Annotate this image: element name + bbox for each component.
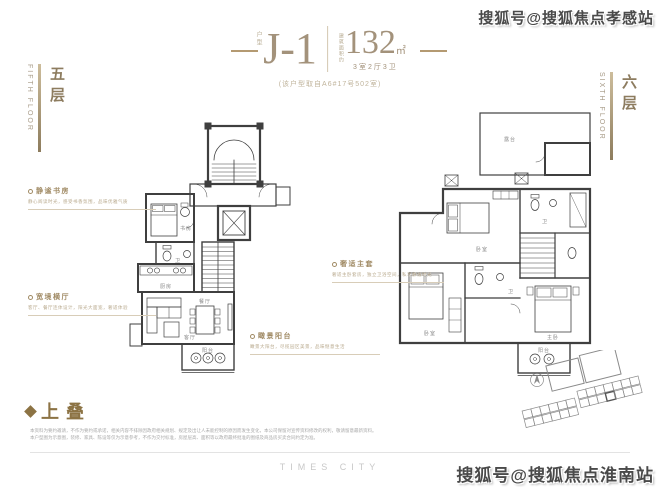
ac-unit-icon (445, 175, 458, 186)
annotation-leader-line (28, 209, 156, 210)
sixth-floor-cn: 六层 (618, 74, 639, 160)
area-row: 132 ㎡ (345, 27, 406, 59)
master-bedroom: 主卧 (511, 286, 579, 341)
fifth-floor-en: FIFTH FLOOR (26, 64, 33, 152)
fifth-floor-label: FIFTH FLOOR 五层 (26, 64, 67, 152)
sink-icon (497, 274, 504, 281)
annotation-leader-line (250, 354, 380, 355)
nightstand-icon (573, 287, 579, 295)
room-label: 餐厅 (199, 298, 211, 305)
watermark-bottom: 搜狐号@搜狐焦点淮南站 (456, 461, 654, 486)
fifth-floor-plan: 书房 卫 厨房 (90, 108, 325, 403)
sink-icon (550, 200, 557, 207)
roof-terrace: 露台 (480, 113, 590, 175)
room-label: 卧室 (424, 330, 436, 337)
annotation-title: 瞰景阳台 (250, 331, 380, 341)
header-right-dash (420, 50, 447, 52)
annotation-study: 静谧书房 静心阅读时光，感受书香氛围，品味优雅气质 (28, 186, 156, 210)
toilet-icon (475, 274, 483, 285)
annotation-master-suite: 奢适主套 奢适主卧套房，独立卫浴空间，私享静谧时光 (332, 259, 444, 283)
wardrobe-icon (493, 191, 518, 199)
disclaimer-line-2: 本户型图为示意图，装修、家具、陈设等仅为示意参考，不作为交付标准，房屋层高、面积… (30, 434, 630, 441)
source-note: (该户型取自A6#17号502室) (279, 79, 382, 89)
room-label: 露台 (504, 136, 516, 143)
balcony: 阳台 (182, 344, 234, 373)
annotation-leader-line (332, 282, 444, 283)
unit-prefix-label: 户型 (254, 31, 263, 47)
annotation-marker-icon (332, 262, 337, 267)
annotation-desc: 静心阅读时光，感受书香氛围，品味优雅气质 (28, 199, 156, 205)
building-blocks (515, 350, 644, 428)
tv-cabinet-icon (228, 304, 232, 330)
annotation-view-balcony: 瞰景阳台 瞰景大阳台，尽揽园区美景，品味惬意生活 (250, 331, 380, 355)
watermark-top: 搜狐号@搜狐焦点孝感站 (478, 7, 654, 28)
annotation-title-text: 奢适主套 (340, 259, 374, 269)
annotation-desc: 瞰景大阳台，尽揽园区美景，品味惬意生活 (250, 344, 380, 350)
dining-set-icon: 餐厅 (190, 298, 220, 334)
bathroom: 卫 (156, 242, 194, 264)
room-label: 卧室 (476, 246, 488, 253)
room-label: 厨房 (160, 283, 172, 290)
bedroom-a: 卧室 (432, 191, 518, 253)
annotation-marker-icon (250, 334, 255, 339)
annotation-desc: 奢适主卧套房，独立卫浴空间，私享静谧时光 (332, 272, 444, 278)
bay-window (130, 324, 142, 346)
table-icon (181, 208, 190, 217)
sink-icon (184, 251, 191, 258)
stairs-icon (202, 242, 234, 292)
annotation-title-text: 宽境横厅 (36, 292, 70, 302)
bathroom: 卫 (531, 193, 586, 227)
annotation-title: 静谧书房 (28, 186, 156, 196)
toilet-icon (531, 200, 539, 211)
site-key-plan (515, 350, 655, 428)
area-value: 132 (345, 27, 396, 59)
sink-icon (147, 268, 152, 273)
bed-icon (447, 203, 489, 233)
room-label: 主卧 (547, 334, 559, 341)
room-label: 客厅 (184, 334, 196, 341)
header-divider (327, 26, 328, 72)
coffee-table-icon (164, 322, 179, 337)
fifth-floor-bar (38, 64, 41, 152)
fifth-floor-cn: 五层 (46, 66, 67, 152)
room-label: 阳台 (202, 347, 214, 354)
floorplan-page: 户型 J-1 建筑面积约 132 ㎡ 3室2厅3卫 (该户型取自A6#17号50… (0, 0, 660, 487)
toilet-icon (568, 248, 576, 259)
rooms-summary: 3室2厅3卫 (353, 62, 398, 72)
toilet-icon (163, 246, 171, 262)
disclaimer: 本资料为要约邀请，不作为要约或承诺，相关内容不排除因政府相关规划、规定及出让人未… (30, 427, 630, 441)
stairwell-core-icon (205, 123, 264, 188)
annotation-desc: 客厅、餐厅连体设计，阳光大面宽，奢适体验 (28, 305, 156, 311)
room-label: 卫 (542, 219, 548, 225)
elevator-icon (218, 206, 250, 240)
room-label: 卫 (508, 289, 514, 295)
nightstand-icon (527, 287, 533, 295)
annotation-title-text: 静谧书房 (36, 186, 70, 196)
compass-icon (531, 374, 544, 387)
annotation-title: 宽境横厅 (28, 292, 156, 302)
annotation-title-text: 瞰景阳台 (258, 331, 292, 341)
area-block: 建筑面积约 132 ㎡ 3室2厅3卫 (338, 27, 406, 72)
diamond-icon (24, 405, 37, 418)
unit-code-block: 户型 J-1 (254, 27, 317, 71)
unit-code: J-1 (263, 27, 317, 71)
annotation-title: 奢适主套 (332, 259, 444, 269)
unit-header: 户型 J-1 建筑面积约 132 ㎡ 3室2厅3卫 (254, 26, 406, 72)
section-label: 上叠 (26, 398, 91, 424)
section-label-text: 上叠 (41, 398, 91, 424)
sixth-floor-bar (610, 72, 613, 160)
annotation-leader-line (28, 315, 156, 316)
room-label: 书房 (180, 225, 192, 232)
planter-icon (191, 353, 201, 363)
bathroom-b: 卫 (475, 267, 514, 296)
kitchen: 厨房 (138, 264, 194, 292)
stairs-icon (520, 238, 576, 273)
area-unit: ㎡ (396, 42, 406, 57)
disclaimer-line-1: 本资料为要约邀请，不作为要约或承诺，相关内容不排除因政府相关规划、规定及出让人未… (30, 427, 630, 434)
stove-icon (173, 268, 178, 273)
footer-divider (30, 452, 630, 453)
bed-icon (535, 286, 571, 332)
annotation-hall: 宽境横厅 客厅、餐厅连体设计，阳光大面宽，奢适体验 (28, 292, 156, 316)
area-main: 132 ㎡ 3室2厅3卫 (345, 27, 406, 72)
annotation-marker-icon (28, 295, 33, 300)
wardrobe-icon (449, 298, 461, 332)
area-note-label: 建筑面积约 (338, 33, 345, 63)
annotation-marker-icon (28, 189, 33, 194)
